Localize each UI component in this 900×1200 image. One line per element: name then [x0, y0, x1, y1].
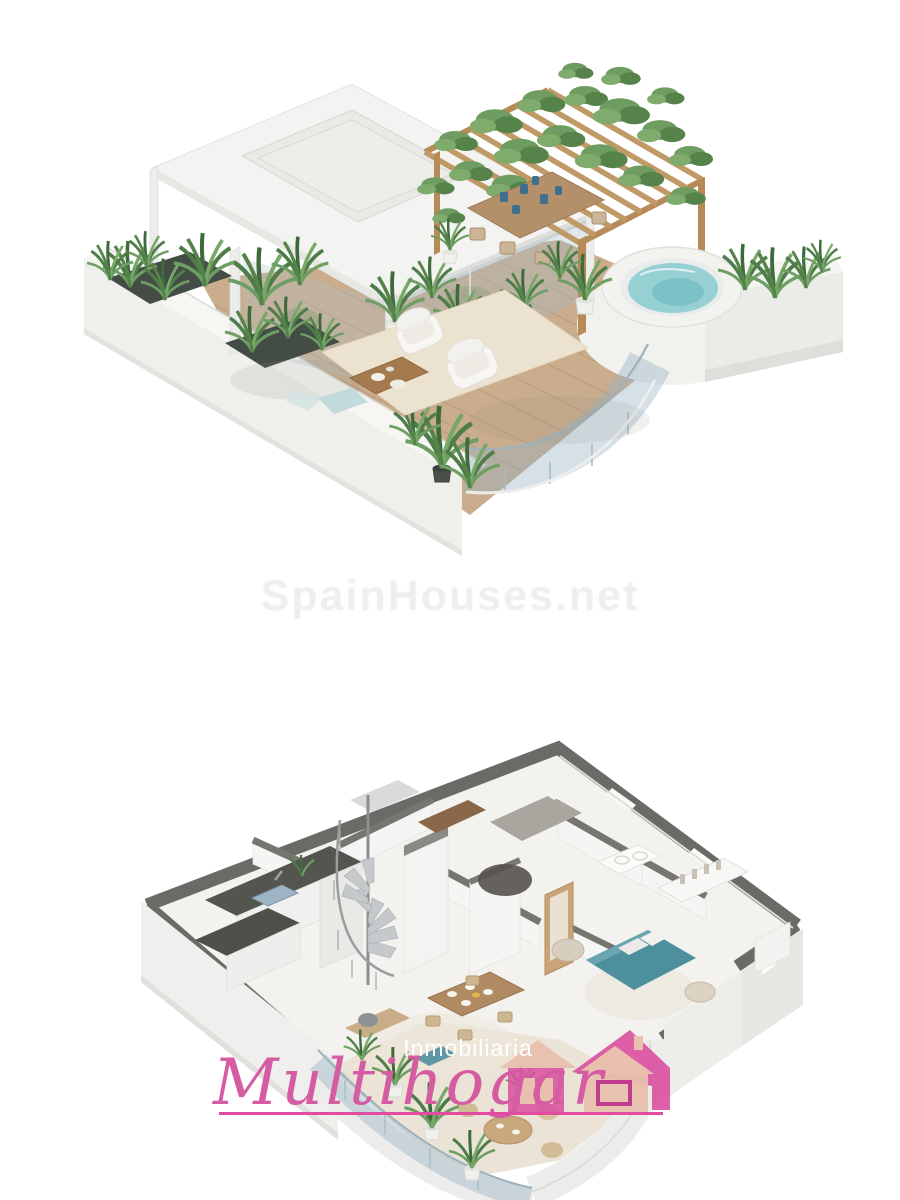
- logo-brand-name: Multihogar: [212, 1046, 606, 1120]
- armchair: [552, 939, 584, 961]
- jacuzzi: [602, 247, 742, 327]
- logo-underline: [219, 1112, 663, 1115]
- terrace-chair: [541, 1142, 563, 1158]
- agency-logo: Inmobiliaria Multihogar: [203, 1022, 695, 1127]
- rooftop-terrace-render: [0, 0, 900, 640]
- armchair: [685, 982, 715, 1002]
- round-rug: [478, 864, 532, 896]
- listing-image: SpainHouses.net: [0, 0, 900, 1200]
- watermark-text: SpainHouses.net: [0, 572, 900, 621]
